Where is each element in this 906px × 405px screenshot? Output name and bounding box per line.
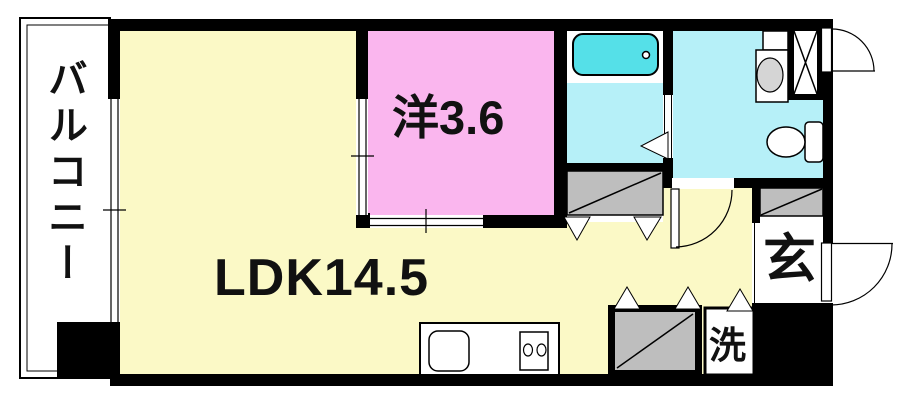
- stove-burner-left: [524, 344, 533, 356]
- entrance-label: 玄: [763, 233, 816, 286]
- opening-washroom-door: [672, 178, 734, 189]
- door-meterbox-leaf: [822, 28, 832, 72]
- vanity-cabinet: [763, 31, 788, 50]
- wall-entrance-left: [752, 178, 760, 223]
- laundry-label: 洗: [709, 327, 746, 364]
- wall-western-corner: [356, 213, 370, 228]
- wall-mass-bottom-right: [752, 303, 833, 385]
- toilet-bowl: [767, 127, 805, 157]
- toilet-tank: [805, 122, 823, 162]
- floorplan-drawing: [0, 0, 906, 405]
- wall-bath-closet: [554, 163, 663, 171]
- door-washroom-leaf: [671, 189, 679, 248]
- western-room-label: 洋3.6: [392, 94, 504, 141]
- wall-ldk-left-upper: [108, 19, 120, 99]
- bathtub-faucet: [643, 52, 650, 59]
- kitchen-sink: [429, 331, 469, 371]
- balcony-label: バルコニー: [44, 58, 84, 358]
- bathroom-floor: [567, 83, 663, 163]
- wall-top: [110, 19, 833, 31]
- ldk-label: LDK14.5: [214, 252, 429, 304]
- wall-western-left-upper: [356, 19, 368, 99]
- door-entrance-leaf: [822, 243, 832, 301]
- door-entrance-arc: [831, 244, 892, 305]
- ldk-floor-main: [120, 31, 356, 375]
- stove-burner-right: [537, 344, 546, 356]
- vanity-bowl: [757, 58, 783, 92]
- floorplan-canvas: バルコニー LDK14.5 洋3.6 玄 洗: [0, 0, 906, 405]
- wall-western-right: [554, 19, 567, 222]
- door-meterbox-arc: [832, 29, 874, 71]
- wall-bath-washroom-upper: [663, 19, 673, 98]
